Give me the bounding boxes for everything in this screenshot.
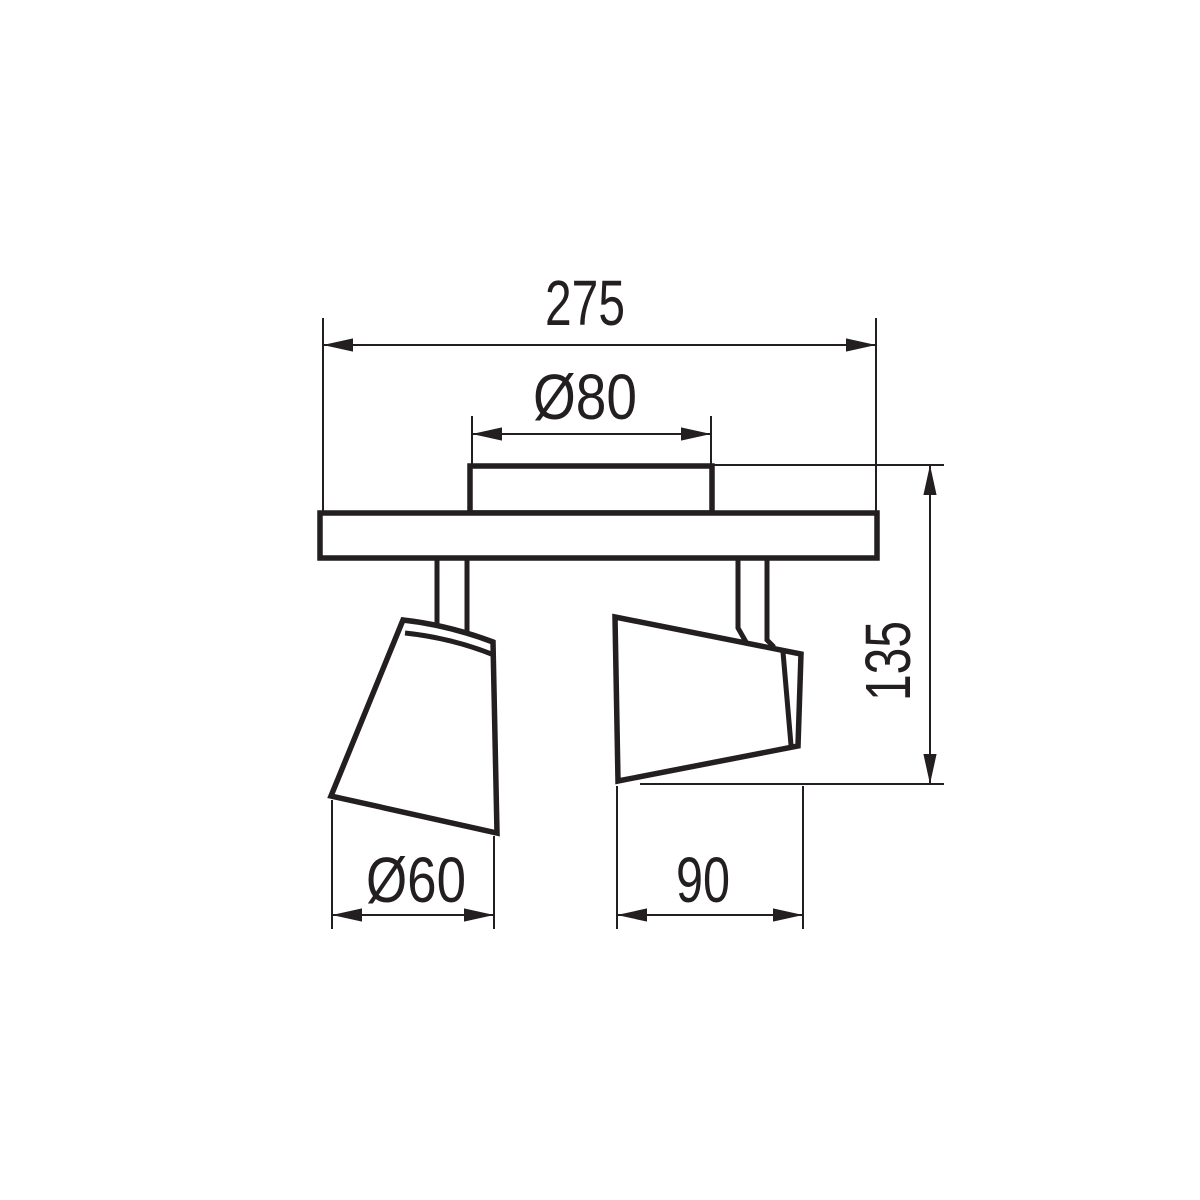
dim-label-canopy-diameter: Ø80 <box>533 361 637 433</box>
dim-canopy-diameter: Ø80 <box>472 361 711 464</box>
dim-label-left-shade-diameter: Ø60 <box>366 844 466 916</box>
left-shade-outline <box>331 620 497 833</box>
right-shade-outline <box>615 617 801 781</box>
mounting-canopy <box>470 466 712 513</box>
fixture-drawing <box>320 466 877 833</box>
right-lamp-head <box>615 617 801 781</box>
dim-right-shade-length: 90 <box>617 786 803 929</box>
spotlight-dimension-drawing: 275 Ø80 135 Ø60 90 <box>0 0 1200 1200</box>
right-stem-line-outer <box>738 556 746 642</box>
mounting-plate <box>320 513 877 558</box>
dim-label-overall-width: 275 <box>545 267 625 339</box>
right-lamp-stem <box>738 556 773 652</box>
dim-label-right-shade-length: 90 <box>676 844 730 916</box>
right-stem-line-inner <box>767 556 773 652</box>
technical-drawing-page: 275 Ø80 135 Ø60 90 <box>0 0 1200 1200</box>
dim-label-total-height: 135 <box>852 621 924 701</box>
left-lamp-head <box>331 620 497 833</box>
